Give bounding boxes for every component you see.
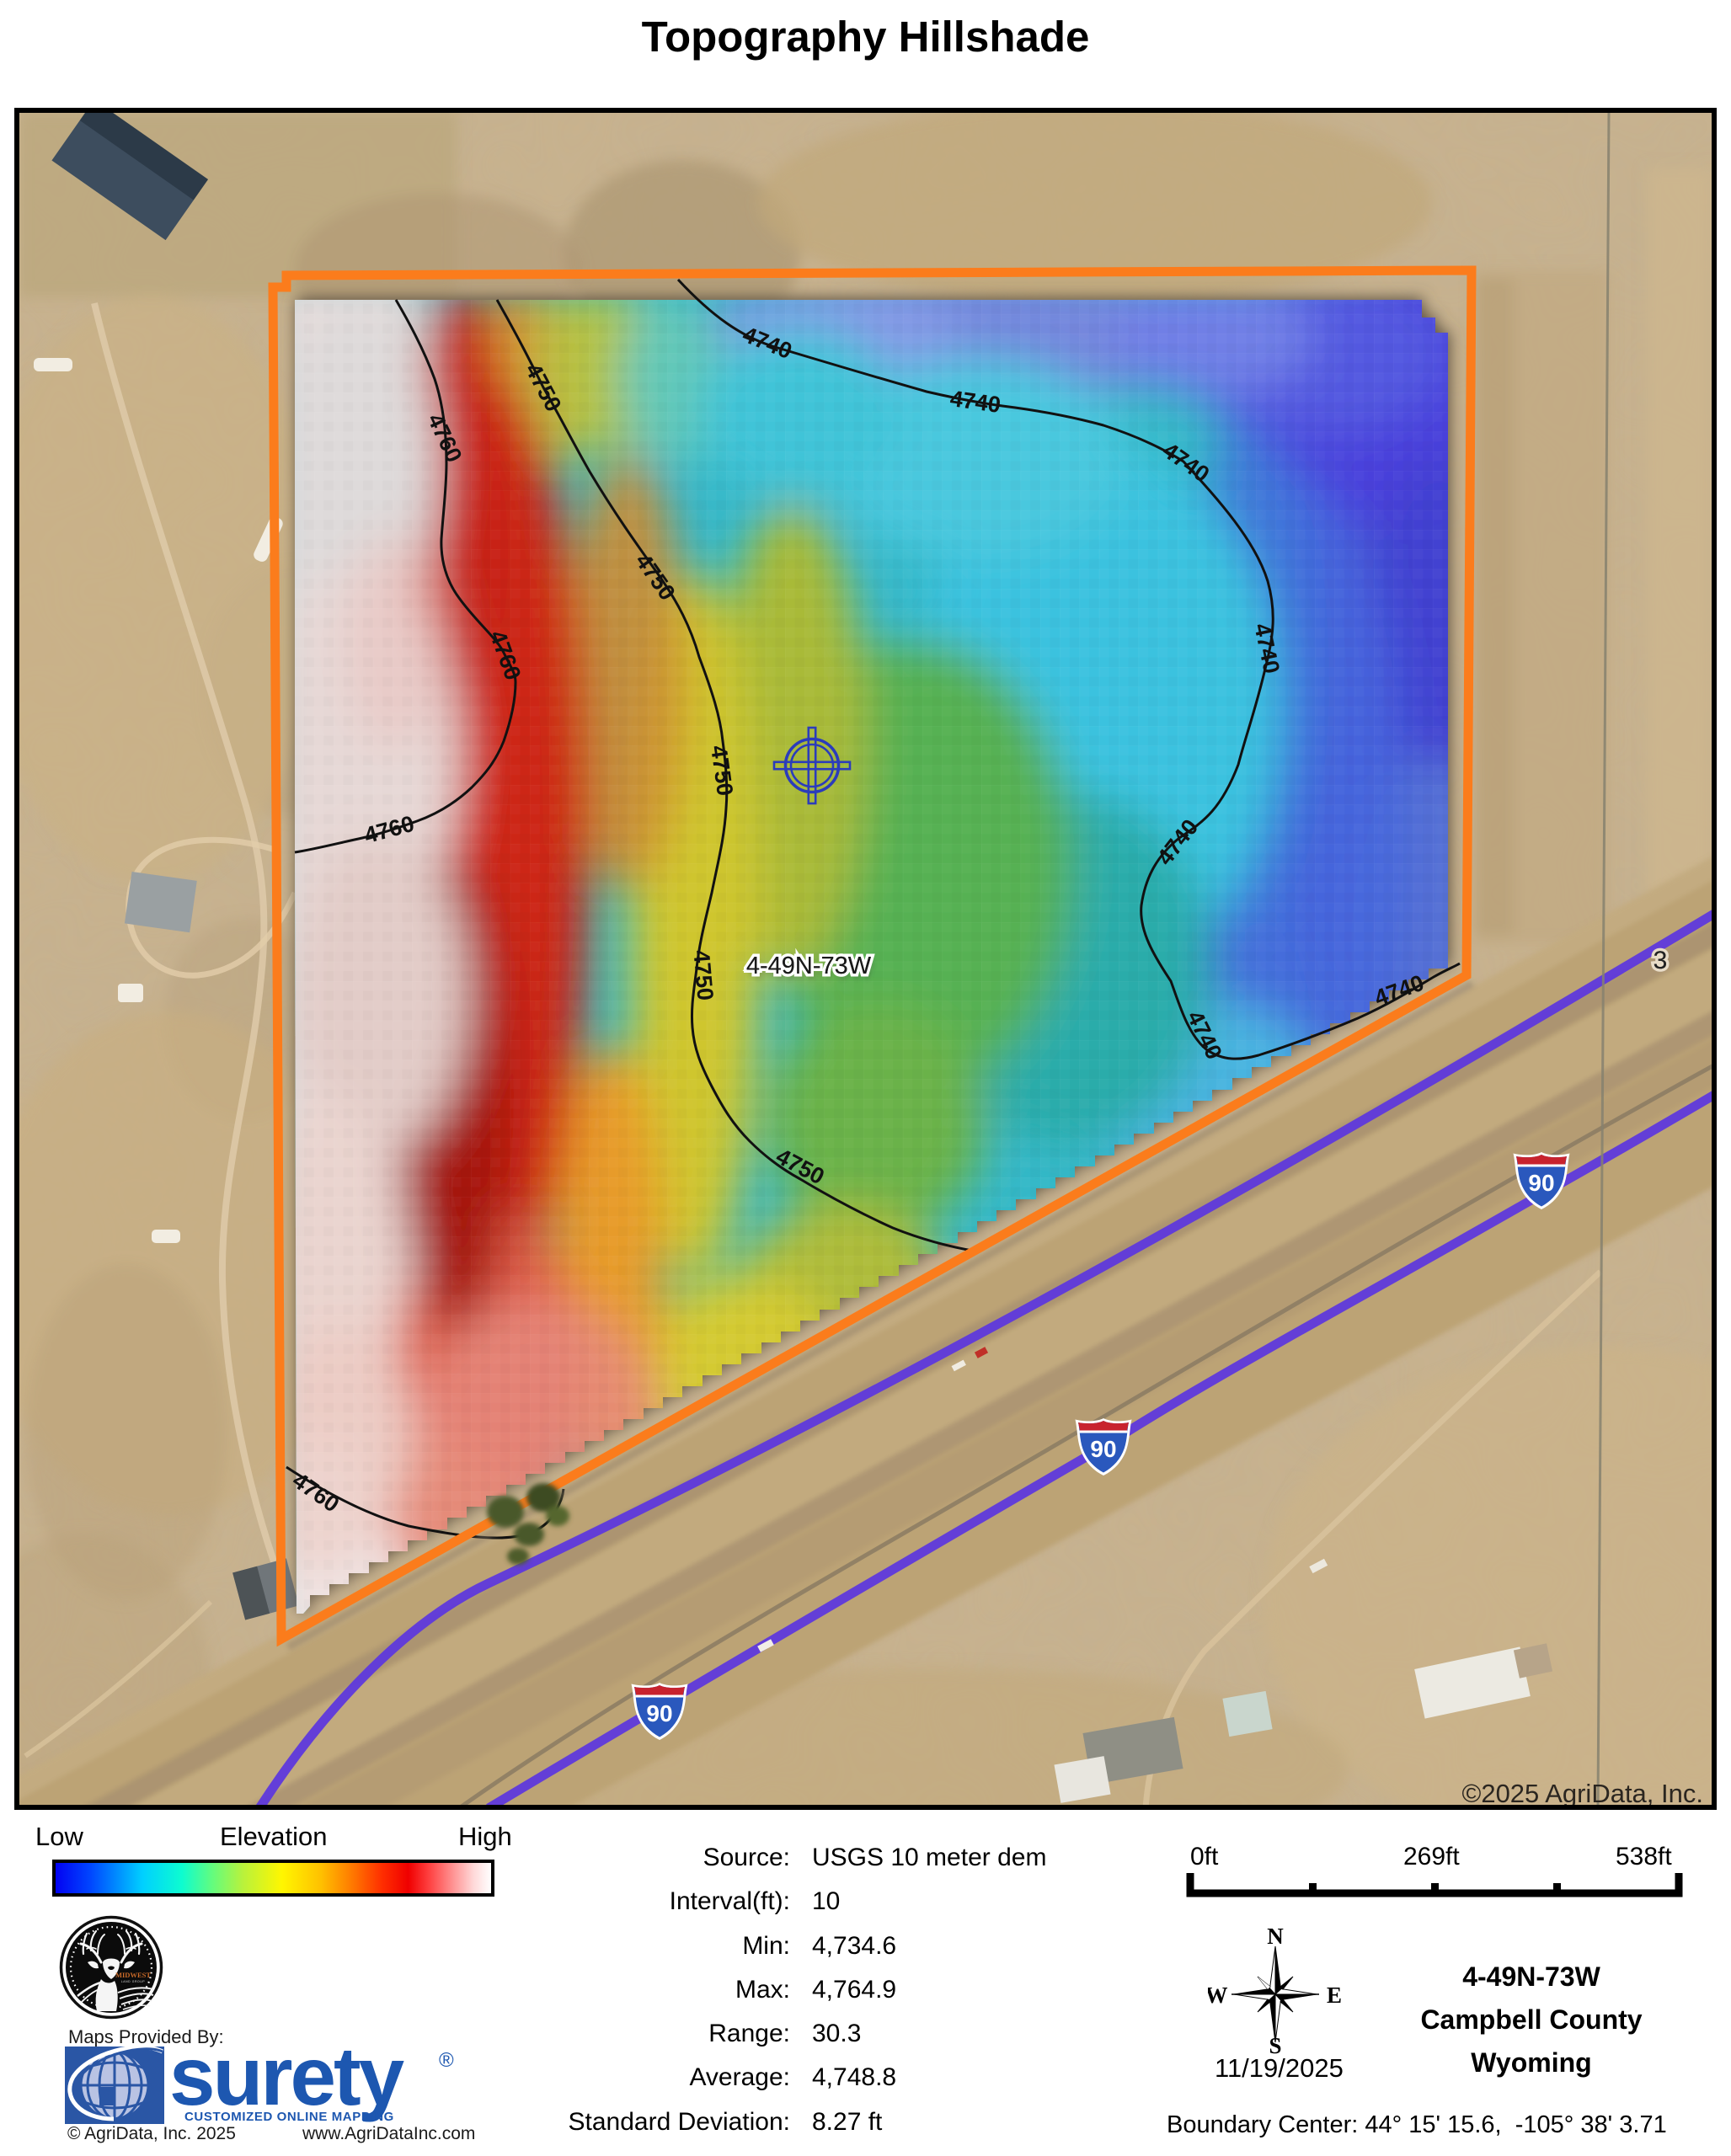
svg-text:3: 3 (1654, 947, 1668, 974)
svg-text:MIDWEST: MIDWEST (115, 1971, 151, 1979)
svg-text:LAND GROUP: LAND GROUP (121, 1980, 146, 1983)
svg-text:4750: 4750 (688, 949, 718, 1001)
svg-text:90: 90 (1528, 1170, 1554, 1196)
svg-text:W: W (1208, 1983, 1228, 2008)
svg-text:E: E (1327, 1983, 1342, 2008)
svg-text:N: N (1267, 1929, 1284, 1949)
svg-text:90: 90 (1090, 1436, 1116, 1462)
svg-text:CUSTOMIZED ONLINE MAPPING: CUSTOMIZED ONLINE MAPPING (184, 2110, 394, 2124)
svg-text:®: ® (439, 2049, 454, 2072)
svg-text:©2025 AgriData, Inc.: ©2025 AgriData, Inc. (1461, 1779, 1703, 1808)
svg-text:90: 90 (646, 1700, 672, 1726)
svg-text:4-49N-73W: 4-49N-73W (746, 953, 872, 979)
